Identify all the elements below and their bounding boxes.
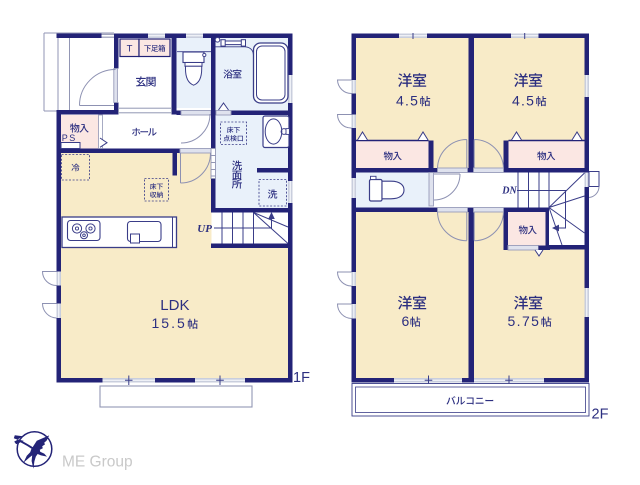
- svg-text:UP: UP: [197, 223, 212, 235]
- svg-text:4.5: 4.5: [396, 92, 419, 108]
- svg-text:DN: DN: [501, 186, 517, 197]
- svg-text:ME Group: ME Group: [62, 454, 133, 471]
- svg-text:4.5: 4.5: [512, 92, 535, 108]
- svg-text:LDK: LDK: [160, 297, 189, 314]
- svg-text:5.75: 5.75: [508, 313, 541, 329]
- svg-text:6: 6: [402, 313, 410, 329]
- svg-text:15.5: 15.5: [152, 315, 187, 331]
- svg-text:1F: 1F: [293, 370, 310, 386]
- svg-text:2F: 2F: [592, 407, 609, 423]
- svg-text:T: T: [127, 43, 133, 54]
- svg-text:PS: PS: [62, 133, 77, 143]
